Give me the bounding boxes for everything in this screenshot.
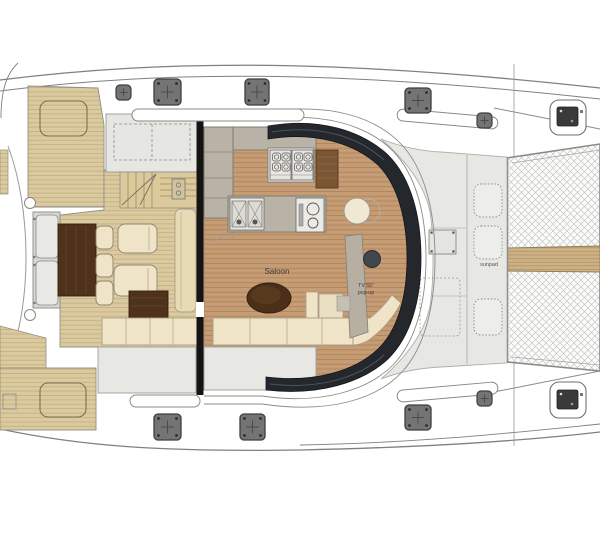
cockpit-coffee-table bbox=[129, 291, 168, 318]
sunpad-cushion bbox=[474, 226, 502, 259]
anchor-windlass bbox=[550, 100, 586, 135]
transom-bench-seat bbox=[36, 215, 58, 258]
hull-sheer-bottom-inner bbox=[300, 424, 600, 445]
sink-faucet bbox=[253, 220, 258, 225]
cockpit-side-deck bbox=[98, 347, 196, 393]
cockpit-overhang bbox=[106, 114, 198, 172]
stairs-to-hull bbox=[120, 172, 197, 208]
sink-faucet bbox=[237, 220, 242, 225]
sunpad-cushion bbox=[474, 299, 502, 335]
bench-bolt bbox=[33, 218, 35, 220]
aft-deck-teak-top bbox=[28, 86, 104, 207]
cockpit-dining-table bbox=[58, 224, 96, 296]
deck-hatch bbox=[240, 414, 265, 440]
deck-filler-cap bbox=[25, 310, 36, 321]
bench-bolt bbox=[33, 256, 35, 258]
cockpit-armchair bbox=[118, 224, 157, 253]
deck-filler-cap bbox=[25, 198, 36, 209]
hull-sheer-bottom-outer bbox=[0, 429, 600, 450]
sunpad-label: sunpad bbox=[480, 262, 498, 268]
stair-fixture bbox=[172, 179, 185, 199]
deck-hatch bbox=[154, 79, 181, 105]
dining-chair bbox=[96, 226, 113, 249]
saloon-table-highlight bbox=[251, 286, 281, 304]
hatch-corner-mark bbox=[452, 250, 454, 252]
boat-floor-plan: sunpad bbox=[0, 0, 600, 540]
bench-bolt bbox=[33, 302, 35, 304]
transom-bench-seat bbox=[36, 261, 58, 305]
tv-label-line1: TV 55" bbox=[358, 283, 374, 289]
tv-cabinet-block bbox=[337, 296, 350, 311]
aft-deck-teak-bottom bbox=[0, 368, 96, 430]
tv-label-line2: pop-up bbox=[358, 290, 374, 296]
saloon-round-fixture bbox=[344, 198, 370, 224]
cockpit-side-bench bbox=[175, 209, 196, 312]
hatch-corner-mark bbox=[431, 250, 433, 252]
deck-hatch bbox=[477, 391, 492, 406]
deck-hatch bbox=[116, 85, 131, 100]
cockpit-aft-sofa bbox=[102, 318, 197, 345]
deck-hatch bbox=[154, 414, 181, 440]
trampoline-crossbeam bbox=[507, 246, 600, 272]
foredeck-hatch bbox=[429, 230, 456, 254]
door-opening-gap bbox=[196, 302, 204, 317]
floor-plan-svg: sunpad bbox=[0, 0, 600, 540]
sofa-chaise bbox=[306, 292, 318, 318]
dining-chair bbox=[96, 281, 113, 305]
cockpit-aft-deck bbox=[0, 86, 198, 430]
anchor-windlass bbox=[550, 382, 586, 418]
hob-control-strip bbox=[299, 204, 303, 226]
dining-chair bbox=[96, 254, 113, 277]
sliding-door-wall bbox=[197, 114, 204, 395]
deck-hatch bbox=[405, 405, 431, 430]
bench-bolt bbox=[33, 264, 35, 266]
hatch-corner-mark bbox=[431, 232, 433, 234]
handrail-bar bbox=[132, 109, 304, 121]
sofa-main-band bbox=[213, 318, 353, 345]
hatch-corner-mark bbox=[452, 232, 454, 234]
handrail-bar bbox=[130, 395, 200, 407]
deck-hatch bbox=[477, 113, 492, 128]
stern-corner-line bbox=[1, 63, 18, 118]
saloon-label: Saloon bbox=[265, 267, 290, 276]
deck-hatch bbox=[405, 88, 431, 113]
galley-wood-cabinet bbox=[316, 150, 338, 188]
tv-popup-circle bbox=[364, 251, 381, 268]
aft-teak-step bbox=[0, 326, 46, 368]
deck-hatch bbox=[245, 79, 269, 105]
sunpad-cushion bbox=[474, 184, 502, 217]
swim-platform-teak bbox=[0, 150, 8, 194]
